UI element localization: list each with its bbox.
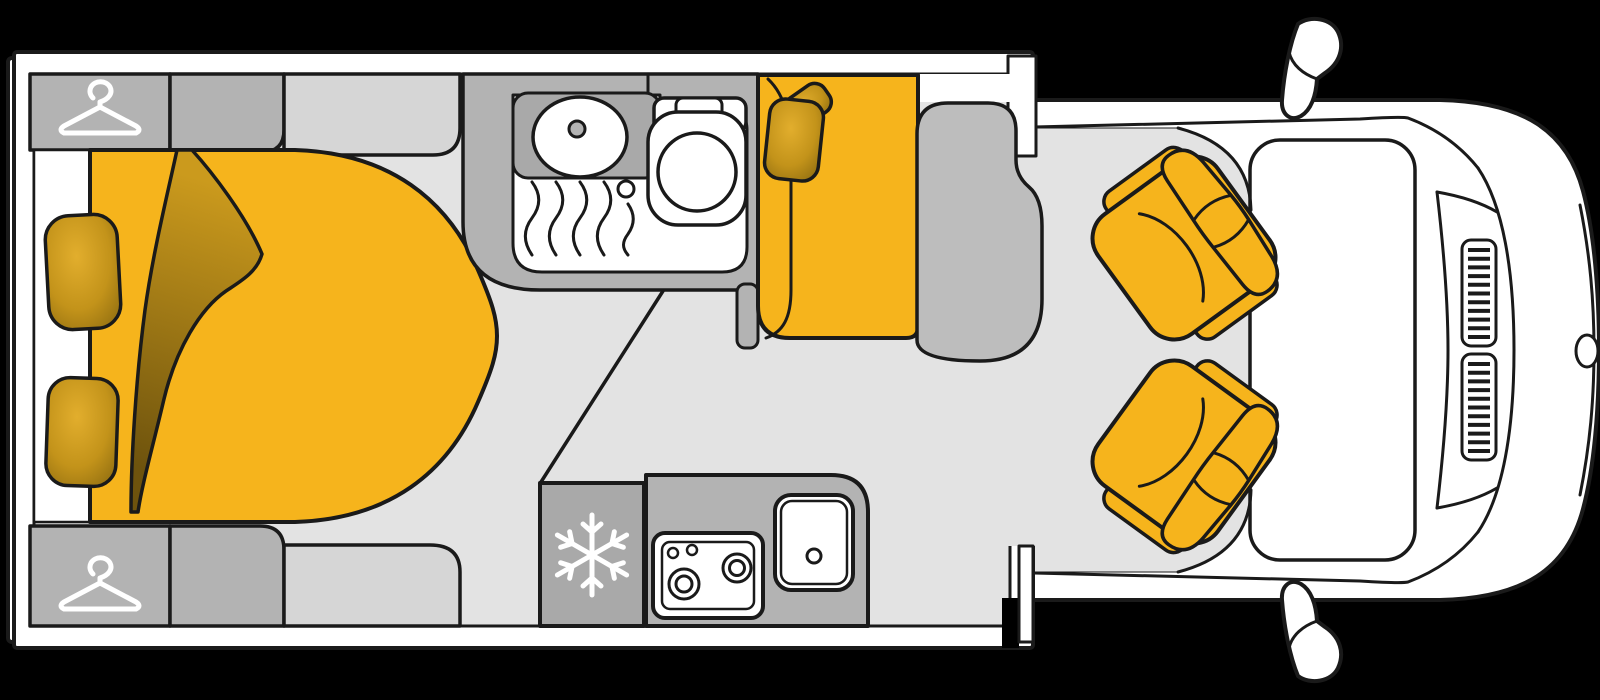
windscreen [1250, 140, 1415, 560]
hob-knob [668, 548, 678, 558]
floorplan-stage [0, 0, 1600, 700]
kitchen-sink [775, 495, 853, 590]
grille-vent-bottom [1462, 354, 1496, 460]
wall-stub-bottom [1019, 546, 1033, 642]
room-kitchen [540, 475, 868, 626]
cabinet-top-light [284, 74, 460, 155]
motorhome-floorplan [0, 0, 1600, 700]
plan-root [8, 19, 1599, 681]
wardrobe-top [30, 74, 170, 150]
toilet [648, 98, 746, 225]
sofa-cushion [763, 97, 825, 182]
grille-vent-top [1462, 240, 1496, 346]
sink-drain [807, 549, 821, 563]
cab [1032, 19, 1599, 681]
front-badge [1576, 335, 1598, 367]
cabinet-bottom-light [284, 545, 460, 626]
toilet-bowl [658, 133, 736, 211]
room-lounge [758, 74, 1042, 361]
bed-pillow [45, 377, 119, 487]
shower-drain [618, 181, 634, 197]
cabinet-top-mid [170, 74, 284, 152]
entry-door-gap [1002, 598, 1019, 648]
hob-knob [687, 545, 697, 555]
hob [653, 533, 763, 618]
bed-pillow [44, 213, 122, 331]
basin-drain [569, 121, 585, 137]
washroom-wall-stub [737, 284, 758, 348]
hob-burner [669, 569, 699, 599]
cabinet-bottom-mid [170, 526, 284, 626]
hob-burner [723, 554, 751, 582]
sideboard-strip [918, 74, 1018, 102]
